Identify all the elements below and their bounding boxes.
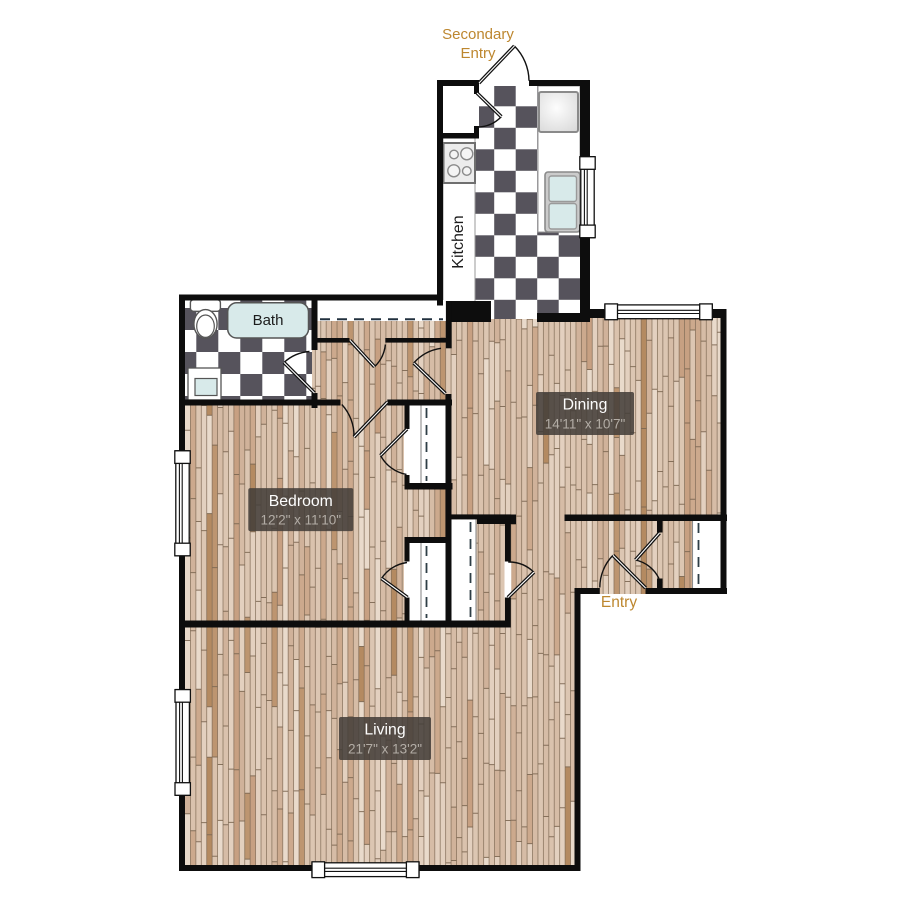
svg-text:Bath: Bath <box>253 312 284 329</box>
svg-text:21'7" x 13'2": 21'7" x 13'2" <box>348 742 422 757</box>
svg-text:Entry: Entry <box>601 594 637 611</box>
svg-text:Kitchen: Kitchen <box>450 215 467 268</box>
svg-text:Dining: Dining <box>563 397 608 414</box>
svg-text:Living: Living <box>364 722 405 739</box>
svg-text:Secondary: Secondary <box>442 26 514 43</box>
svg-text:Bedroom: Bedroom <box>269 493 333 510</box>
svg-text:12'2" x 11'10": 12'2" x 11'10" <box>261 513 342 528</box>
svg-text:14'11" x 10'7": 14'11" x 10'7" <box>545 417 626 432</box>
svg-text:Entry: Entry <box>460 45 496 62</box>
